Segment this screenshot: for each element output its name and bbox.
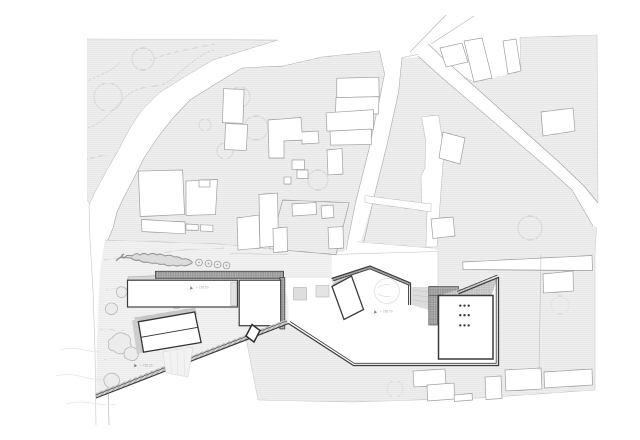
svg-text:+ 739.50: + 739.50 — [196, 285, 209, 289]
svg-text:+ 738.70: + 738.70 — [380, 310, 393, 314]
svg-text:+ 736.20: + 736.20 — [140, 364, 153, 368]
